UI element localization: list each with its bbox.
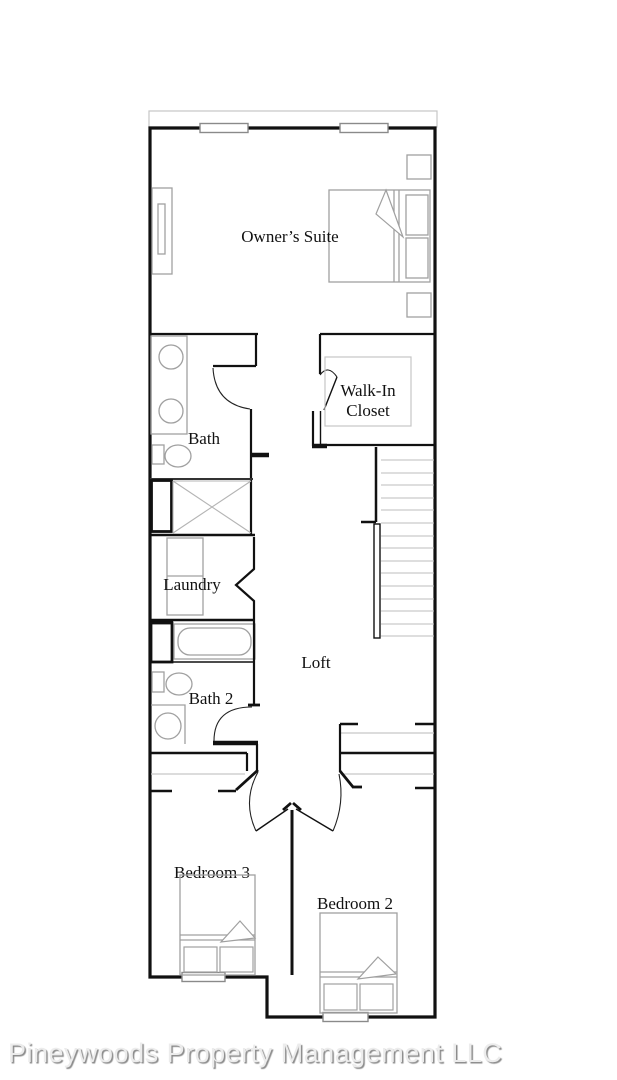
right-closets xyxy=(340,724,435,788)
walk-in-closet-label-line1: Walk-In xyxy=(340,381,396,400)
pillow xyxy=(406,195,428,235)
loft-label: Loft xyxy=(301,653,331,672)
pillow xyxy=(324,984,357,1010)
bathtub xyxy=(174,624,255,659)
pillow xyxy=(360,984,393,1010)
door-swing-arc xyxy=(320,370,337,377)
floor-plan-svg: Owner’s Suite Bath xyxy=(0,0,617,1080)
blanket-fold xyxy=(358,957,396,979)
bath-label: Bath xyxy=(188,429,221,448)
walk-in-closet-label-line2: Closet xyxy=(346,401,390,420)
toilet xyxy=(152,445,191,467)
sink xyxy=(155,713,181,739)
walk-in-closet-room: Walk-In Closet xyxy=(325,357,411,426)
bedroom-door-swings xyxy=(249,772,341,975)
pillow xyxy=(406,238,428,278)
sink xyxy=(159,399,183,423)
linen-chase xyxy=(152,481,172,532)
twin-bed xyxy=(180,875,255,975)
window xyxy=(182,973,225,982)
bath-2-room: Bath 2 xyxy=(150,620,260,753)
twin-bed xyxy=(320,913,397,1013)
stair-rail xyxy=(374,524,380,638)
stair-treads xyxy=(381,460,434,636)
dresser-top-item xyxy=(158,204,165,254)
laundry-door-notch xyxy=(236,537,254,620)
bath-2-label: Bath 2 xyxy=(189,689,234,708)
laundry-room: Laundry xyxy=(150,535,255,621)
floor-plan-page: { "footer": { "watermark": "Pineywoods P… xyxy=(0,0,617,1080)
owners-suite-room: Owner’s Suite xyxy=(152,155,431,317)
nightstand xyxy=(407,155,431,179)
bedroom-3-label: Bedroom 3 xyxy=(174,863,250,882)
door-leaf xyxy=(296,809,333,831)
sink xyxy=(159,345,183,369)
blanket-fold xyxy=(221,921,255,942)
bedroom-2-label: Bedroom 2 xyxy=(317,894,393,913)
shower xyxy=(173,481,251,533)
sink-vanity xyxy=(151,705,185,744)
door-swing-arc xyxy=(213,368,250,409)
bedroom-3-room: Bedroom 3 xyxy=(174,863,255,975)
nightstand xyxy=(407,293,431,317)
door-swing-arc xyxy=(214,707,252,741)
door-leaf xyxy=(324,377,337,410)
staircase xyxy=(361,447,434,638)
toilet xyxy=(152,672,192,695)
window xyxy=(340,124,388,133)
bedroom-2-room: Bedroom 2 xyxy=(317,894,397,1013)
door-swing-arc xyxy=(333,774,341,831)
pillow xyxy=(220,947,253,972)
laundry-label: Laundry xyxy=(163,575,221,594)
queen-bed xyxy=(329,190,430,282)
pillow xyxy=(184,947,217,972)
door-swing-arc xyxy=(249,772,258,831)
door-leaf xyxy=(256,809,288,831)
owners-suite-label: Owner’s Suite xyxy=(241,227,338,246)
plumbing-chase xyxy=(151,623,172,662)
watermark-text: Pineywoods Property Management LLC xyxy=(8,1038,613,1069)
window xyxy=(323,1013,368,1022)
bedroom-3-closet xyxy=(150,744,258,791)
dresser xyxy=(152,188,172,274)
roof-parapet xyxy=(149,111,437,127)
window xyxy=(200,124,248,133)
